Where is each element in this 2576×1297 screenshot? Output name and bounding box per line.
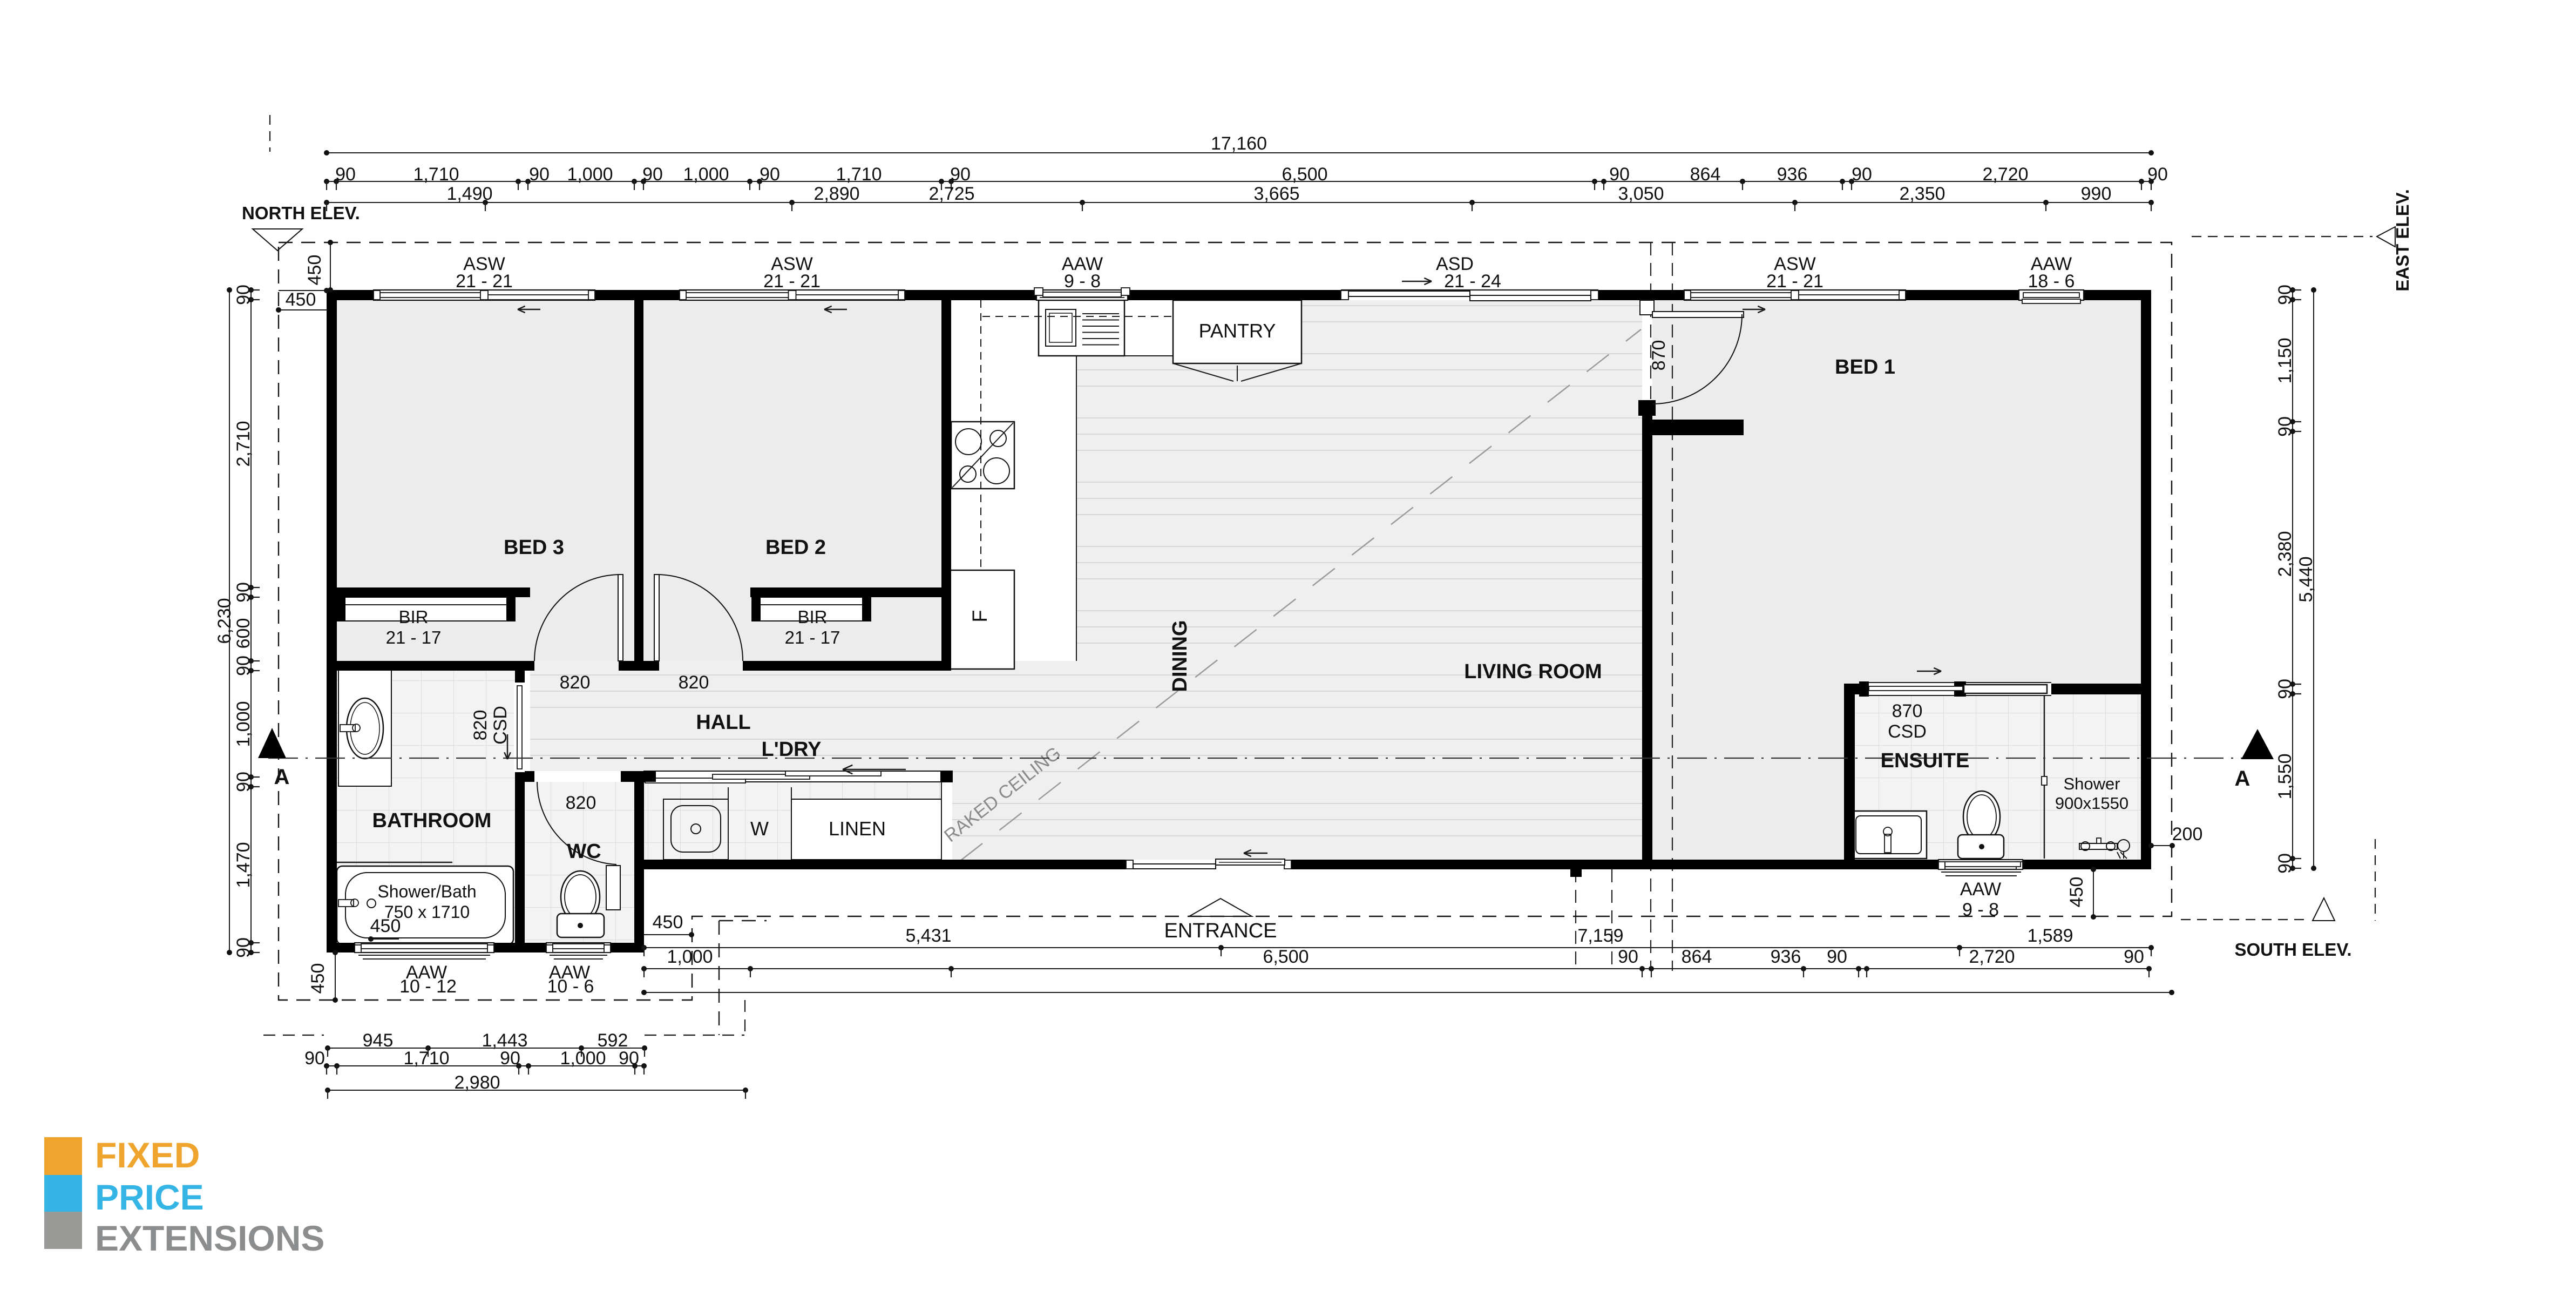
svg-text:1,000: 1,000 xyxy=(667,947,713,967)
svg-text:ENTRANCE: ENTRANCE xyxy=(1164,920,1277,942)
svg-text:1,589: 1,589 xyxy=(2027,926,2073,946)
svg-text:450: 450 xyxy=(2066,877,2087,908)
svg-text:90: 90 xyxy=(2275,285,2295,305)
svg-text:90: 90 xyxy=(2124,947,2144,967)
svg-text:SOUTH ELEV.: SOUTH ELEV. xyxy=(2235,940,2352,960)
svg-text:21 - 21: 21 - 21 xyxy=(763,271,821,292)
svg-text:21 - 17: 21 - 17 xyxy=(785,627,840,647)
svg-text:820: 820 xyxy=(566,793,596,813)
svg-text:870: 870 xyxy=(1649,340,1669,371)
svg-text:90: 90 xyxy=(304,1048,325,1069)
svg-text:21 - 21: 21 - 21 xyxy=(1766,271,1823,292)
svg-text:1,710: 1,710 xyxy=(836,164,882,185)
svg-text:600: 600 xyxy=(233,618,254,649)
svg-text:90: 90 xyxy=(529,164,550,185)
svg-text:200: 200 xyxy=(2172,824,2203,845)
svg-text:WC: WC xyxy=(567,840,601,863)
svg-text:90: 90 xyxy=(233,656,254,676)
svg-text:2,710: 2,710 xyxy=(233,421,254,467)
svg-text:90: 90 xyxy=(233,285,254,305)
svg-text:90: 90 xyxy=(233,772,254,792)
svg-text:90: 90 xyxy=(233,582,254,603)
svg-text:1,470: 1,470 xyxy=(233,842,254,888)
svg-text:5,440: 5,440 xyxy=(2296,556,2316,602)
svg-text:10 - 12: 10 - 12 xyxy=(399,976,457,997)
svg-text:870: 870 xyxy=(1892,701,1923,721)
svg-text:DINING: DINING xyxy=(1169,620,1191,692)
svg-text:2,890: 2,890 xyxy=(814,184,859,204)
svg-text:936: 936 xyxy=(1771,947,1801,967)
svg-text:1,000: 1,000 xyxy=(567,164,613,185)
svg-text:BATHROOM: BATHROOM xyxy=(372,809,492,832)
svg-text:W: W xyxy=(750,818,769,840)
svg-text:BED 2: BED 2 xyxy=(765,536,826,559)
svg-text:90: 90 xyxy=(1852,164,1872,185)
svg-text:90: 90 xyxy=(2275,853,2295,874)
svg-text:864: 864 xyxy=(1682,947,1712,967)
svg-text:10 - 6: 10 - 6 xyxy=(547,976,594,997)
svg-text:90: 90 xyxy=(1618,947,1638,967)
svg-text:1,000: 1,000 xyxy=(560,1048,606,1069)
svg-text:PANTRY: PANTRY xyxy=(1199,320,1276,342)
svg-text:FIXED: FIXED xyxy=(95,1135,200,1175)
svg-text:450: 450 xyxy=(286,289,316,310)
svg-text:5,431: 5,431 xyxy=(905,926,951,946)
svg-text:AAW: AAW xyxy=(1960,879,2001,900)
svg-text:1,150: 1,150 xyxy=(2275,337,2295,383)
svg-text:2,350: 2,350 xyxy=(1899,184,1945,204)
svg-text:820: 820 xyxy=(679,672,709,693)
svg-text:A: A xyxy=(2235,767,2250,791)
svg-text:6,500: 6,500 xyxy=(1282,164,1327,185)
svg-text:90: 90 xyxy=(1609,164,1630,185)
svg-text:21 - 21: 21 - 21 xyxy=(456,271,513,292)
svg-text:90: 90 xyxy=(2275,416,2295,437)
svg-text:Shower/Bath: Shower/Bath xyxy=(377,882,476,901)
svg-text:21 - 17: 21 - 17 xyxy=(386,627,442,647)
svg-text:21 - 24: 21 - 24 xyxy=(1444,271,1501,292)
svg-text:2,725: 2,725 xyxy=(928,184,974,204)
svg-text:864: 864 xyxy=(1690,164,1721,185)
svg-text:90: 90 xyxy=(335,164,356,185)
svg-text:BED 1: BED 1 xyxy=(1835,356,1895,379)
svg-text:CSD: CSD xyxy=(1888,721,1927,742)
svg-text:450: 450 xyxy=(653,912,683,933)
svg-text:90: 90 xyxy=(233,937,254,958)
svg-text:NORTH ELEV.: NORTH ELEV. xyxy=(242,203,360,223)
svg-text:90: 90 xyxy=(642,164,663,185)
svg-text:2,720: 2,720 xyxy=(1982,164,2028,185)
svg-text:90: 90 xyxy=(950,164,971,185)
svg-text:17,160: 17,160 xyxy=(1211,133,1267,154)
svg-text:820: 820 xyxy=(470,710,491,741)
svg-text:90: 90 xyxy=(500,1048,520,1069)
svg-text:HALL: HALL xyxy=(696,711,750,734)
svg-text:7,159: 7,159 xyxy=(1577,926,1623,946)
svg-text:L'DRY: L'DRY xyxy=(761,738,821,761)
svg-text:820: 820 xyxy=(560,672,591,693)
svg-text:90: 90 xyxy=(619,1048,639,1069)
svg-text:6,230: 6,230 xyxy=(214,598,235,644)
svg-text:3,050: 3,050 xyxy=(1618,184,1664,204)
svg-text:A: A xyxy=(274,765,290,789)
svg-text:PRICE: PRICE xyxy=(95,1177,204,1217)
svg-text:3,665: 3,665 xyxy=(1253,184,1299,204)
svg-text:1,490: 1,490 xyxy=(446,184,492,204)
svg-text:BED 3: BED 3 xyxy=(504,536,564,559)
svg-text:9 - 8: 9 - 8 xyxy=(1962,900,1999,920)
svg-text:1,710: 1,710 xyxy=(413,164,459,185)
svg-text:BIR: BIR xyxy=(797,607,827,627)
svg-text:BIR: BIR xyxy=(398,607,428,627)
svg-text:LINEN: LINEN xyxy=(829,818,886,840)
svg-text:990: 990 xyxy=(2081,184,2112,204)
svg-text:900x1550: 900x1550 xyxy=(2055,794,2128,813)
svg-text:18 - 6: 18 - 6 xyxy=(2028,271,2075,292)
svg-text:2,380: 2,380 xyxy=(2275,531,2295,577)
svg-text:ENSUITE: ENSUITE xyxy=(1881,749,1970,772)
svg-text:1,000: 1,000 xyxy=(683,164,729,185)
svg-text:1,550: 1,550 xyxy=(2275,753,2295,799)
svg-text:LIVING ROOM: LIVING ROOM xyxy=(1464,660,1602,683)
svg-text:9 - 8: 9 - 8 xyxy=(1064,271,1101,292)
svg-text:1,000: 1,000 xyxy=(233,701,254,747)
svg-text:6,500: 6,500 xyxy=(1263,947,1309,967)
svg-text:945: 945 xyxy=(363,1030,394,1051)
svg-text:936: 936 xyxy=(1777,164,1808,185)
svg-text:90: 90 xyxy=(2147,164,2168,185)
svg-text:2,980: 2,980 xyxy=(454,1072,500,1093)
svg-text:90: 90 xyxy=(760,164,780,185)
svg-text:450: 450 xyxy=(308,963,328,994)
svg-text:2,720: 2,720 xyxy=(1969,947,2015,967)
svg-text:450: 450 xyxy=(304,255,325,286)
svg-text:EXTENSIONS: EXTENSIONS xyxy=(95,1218,324,1258)
svg-text:1,710: 1,710 xyxy=(403,1048,449,1069)
svg-text:90: 90 xyxy=(2275,679,2295,699)
svg-text:F: F xyxy=(969,610,992,622)
svg-text:450: 450 xyxy=(370,916,401,936)
svg-text:Shower: Shower xyxy=(2063,774,2120,793)
svg-text:90: 90 xyxy=(1827,947,1847,967)
